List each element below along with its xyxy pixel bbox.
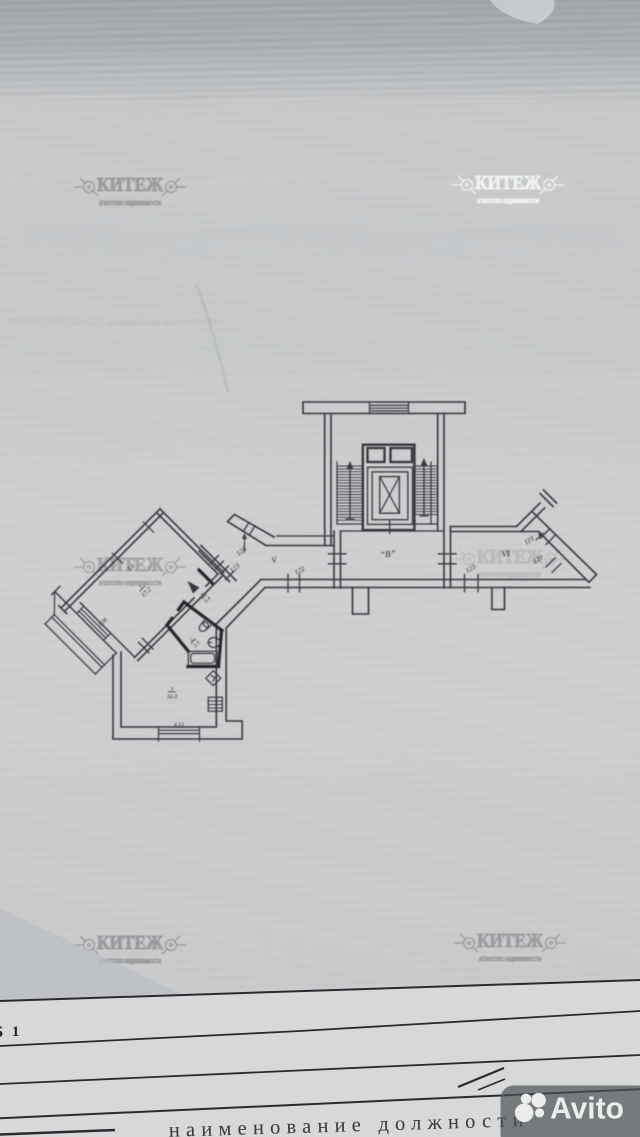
svg-text:119: 119 (523, 534, 536, 546)
svg-text:123: 123 (228, 561, 242, 574)
svg-text:Avito: Avito (550, 1091, 624, 1126)
svg-text:ТехнИчЕскИй пАспОрТ нА кварТИр: ТехнИчЕскИй пАспОрТ нА кварТИру вАлОжЕнИ… (8, 317, 216, 327)
svg-text:5: 5 (0, 1024, 3, 1041)
svg-text:124: 124 (235, 544, 249, 557)
svg-text:16.0: 16.0 (167, 695, 178, 701)
svg-text:V: V (271, 554, 280, 565)
svg-text:3.06: 3.06 (97, 617, 109, 629)
svg-text:1: 1 (12, 1024, 19, 1040)
svg-text:122: 122 (293, 565, 306, 577)
svg-text:4.51: 4.51 (174, 722, 185, 729)
svg-text:“В”: “В” (380, 548, 396, 559)
